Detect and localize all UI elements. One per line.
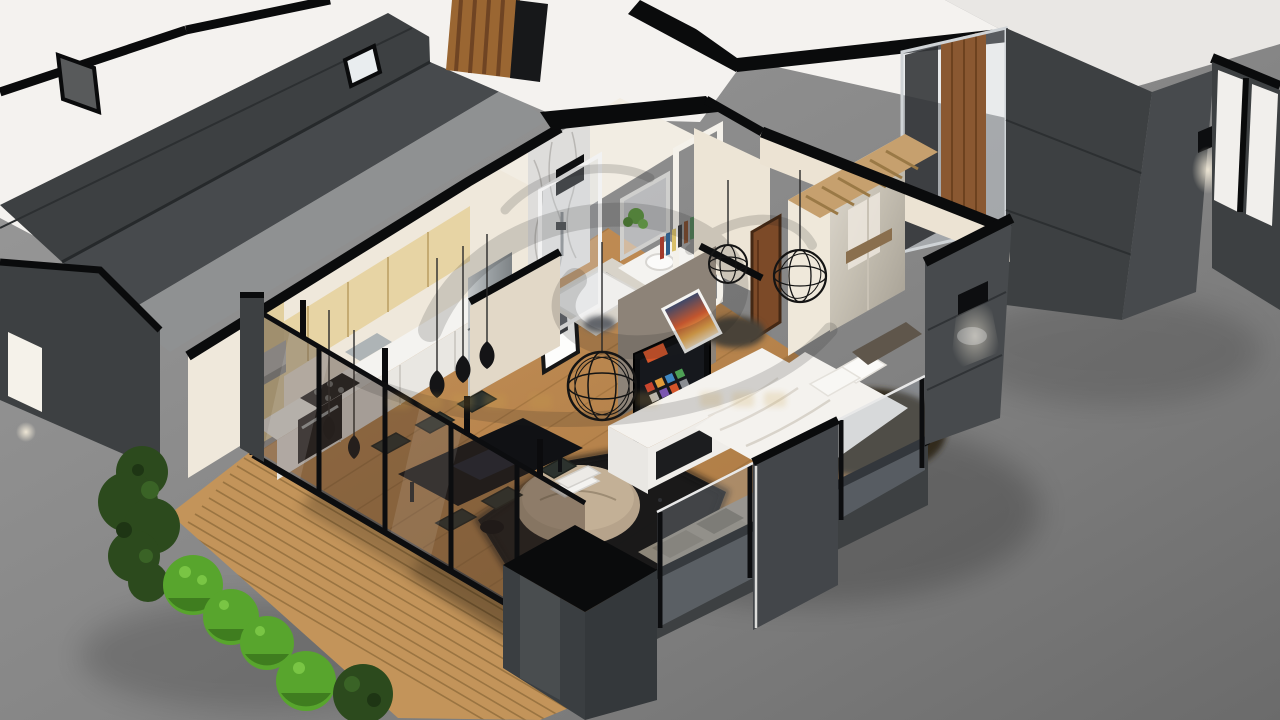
right-facade-windows — [1212, 58, 1280, 310]
sconce-glow — [16, 422, 36, 442]
left-corner-pillar — [240, 295, 264, 462]
sconce-hotspot — [957, 327, 987, 345]
apartment-cutaway-render: Isometric 3D cutaway rendering of a furn… — [0, 0, 1280, 720]
bush — [276, 651, 336, 711]
right-exterior-wall — [925, 218, 1012, 445]
render-stage: Isometric 3D cutaway rendering of a furn… — [0, 0, 1280, 720]
